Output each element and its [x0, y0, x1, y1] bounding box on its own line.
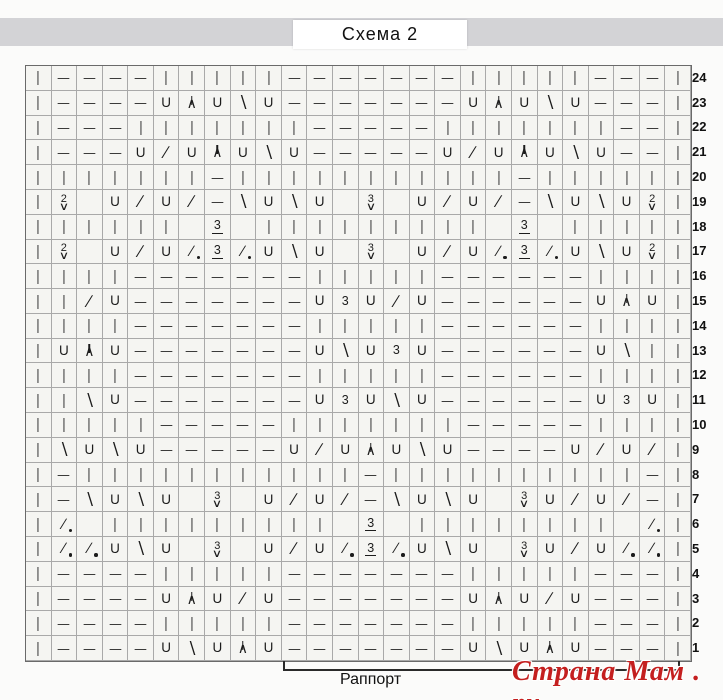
row-number-column: 242322212019181716151413121110987654321	[692, 65, 718, 660]
chart-cell-purl-stitch: —	[282, 66, 308, 91]
chart-cell-empty	[77, 190, 103, 215]
chart-cell-purl-stitch: —	[640, 140, 666, 165]
chart-cell-knit-stitch: |	[461, 215, 487, 240]
chart-cell-knit-stitch: |	[307, 165, 333, 190]
chart-cell-purl-stitch: —	[282, 264, 308, 289]
chart-cell-purl-stitch: —	[282, 388, 308, 413]
chart-cell-knit-stitch: |	[359, 165, 385, 190]
chart-cell-yarn-over: U	[154, 487, 180, 512]
chart-cell-knit-stitch: |	[256, 66, 282, 91]
chart-cell-knit-stitch: |	[179, 611, 205, 636]
chart-cell-elongated-3-wraps: 3∨	[359, 240, 385, 265]
chart-cell-knit-stitch: |	[103, 215, 129, 240]
chart-cell-knit-stitch: |	[26, 116, 52, 141]
chart-cell-purl-stitch: —	[231, 264, 257, 289]
row-number: 14	[692, 313, 718, 338]
chart-cell-purl-stitch: —	[179, 339, 205, 364]
chart-cell-knit-stitch: |	[26, 339, 52, 364]
chart-cell-yarn-over: U	[77, 438, 103, 463]
chart-cell-work-3-times: 3	[333, 388, 359, 413]
chart-cell-purl-stitch: —	[52, 91, 78, 116]
chart-cell-knit-stitch: |	[26, 487, 52, 512]
chart-cell-purl-stitch: —	[231, 363, 257, 388]
chart-cell-yarn-over: U	[563, 91, 589, 116]
chart-cell-yarn-over: U	[384, 438, 410, 463]
chart-cell-k2tog-right-decrease: ∕	[486, 190, 512, 215]
chart-cell-work-3-times: 3	[333, 289, 359, 314]
chart-cell-purl-stitch: —	[384, 562, 410, 587]
chart-cell-yarn-over: U	[538, 537, 564, 562]
chart-cell-knit-stitch: |	[103, 413, 129, 438]
chart-cell-yarn-over: U	[563, 190, 589, 215]
chart-cell-purl-stitch: —	[486, 363, 512, 388]
chart-cell-knit-stitch: |	[128, 463, 154, 488]
row-number: 8	[692, 462, 718, 487]
chart-cell-yarn-over: U	[307, 487, 333, 512]
chart-cell-left-decrease: ∖	[128, 487, 154, 512]
chart-cell-purl-stitch: —	[205, 289, 231, 314]
chart-cell-knit-stitch: |	[435, 413, 461, 438]
chart-cell-elongated-2-wraps: 2∨	[52, 190, 78, 215]
chart-cell-purl-stitch: —	[205, 314, 231, 339]
chart-cell-knit-stitch: |	[52, 289, 78, 314]
chart-cell-knit-stitch: |	[26, 91, 52, 116]
chart-cell-knit-stitch: |	[538, 66, 564, 91]
chart-cell-decrease-with-dot: ∕	[538, 240, 564, 265]
chart-cell-purl-stitch: —	[52, 611, 78, 636]
chart-cell-purl-stitch: —	[128, 562, 154, 587]
row-number: 6	[692, 511, 718, 536]
chart-cell-left-decrease: ∖	[333, 339, 359, 364]
chart-cell-knit-stitch: |	[103, 363, 129, 388]
chart-cell-yarn-over: U	[589, 140, 615, 165]
chart-cell-purl-stitch: —	[282, 611, 308, 636]
chart-cell-knit-stitch: |	[665, 165, 691, 190]
chart-cell-yarn-over: U	[307, 537, 333, 562]
chart-cell-empty	[77, 240, 103, 265]
chart-cell-purl-stitch: —	[538, 264, 564, 289]
chart-cell-knit-stitch: |	[665, 215, 691, 240]
chart-cell-purl-stitch: —	[435, 314, 461, 339]
chart-cell-empty	[333, 240, 359, 265]
chart-cell-yarn-over: U	[461, 537, 487, 562]
chart-cell-knit-stitch: |	[563, 562, 589, 587]
chart-cell-yarn-over: U	[461, 91, 487, 116]
chart-cell-k2tog-right-decrease: ∕	[307, 438, 333, 463]
chart-cell-knit-stitch: |	[307, 512, 333, 537]
chart-cell-purl-stitch: —	[486, 314, 512, 339]
chart-cell-purl-stitch: —	[307, 91, 333, 116]
chart-cell-purl-stitch: —	[359, 66, 385, 91]
page: Схема 2 |————|||||———————|||||———||————U…	[0, 0, 723, 700]
chart-cell-knit-stitch: |	[77, 215, 103, 240]
row-number: 17	[692, 239, 718, 264]
chart-cell-purl-stitch: —	[52, 140, 78, 165]
chart-cell-knit-stitch: |	[52, 215, 78, 240]
chart-cell-knit-stitch: |	[26, 314, 52, 339]
row-number: 15	[692, 288, 718, 313]
chart-cell-knit-stitch: |	[665, 116, 691, 141]
chart-cell-purl-stitch: —	[307, 636, 333, 661]
chart-cell-purl-stitch: —	[307, 587, 333, 612]
chart-cell-decrease-with-dot: ∕	[486, 240, 512, 265]
chart-cell-knit-stitch: |	[589, 314, 615, 339]
chart-cell-purl-stitch: —	[256, 264, 282, 289]
chart-cell-knit-stitch: |	[486, 611, 512, 636]
chart-cell-purl-stitch: —	[179, 264, 205, 289]
chart-cell-purl-stitch: —	[384, 91, 410, 116]
chart-cell-yarn-over: U	[307, 190, 333, 215]
chart-cell-purl-stitch: —	[614, 91, 640, 116]
chart-cell-knit-stitch: |	[512, 611, 538, 636]
chart-cell-purl-stitch: —	[52, 636, 78, 661]
chart-cell-elongated-3-wraps: 3∨	[359, 190, 385, 215]
chart-cell-purl-stitch: —	[359, 587, 385, 612]
chart-cell-central-double-decrease: ∧	[205, 140, 231, 165]
chart-cell-purl-stitch: —	[179, 413, 205, 438]
chart-cell-decrease-with-dot: ∕	[333, 537, 359, 562]
chart-cell-k2tog-right-decrease: ∕	[640, 438, 666, 463]
chart-cell-purl-stitch: —	[512, 438, 538, 463]
chart-cell-knit-stitch: |	[154, 611, 180, 636]
chart-cell-yarn-over: U	[154, 190, 180, 215]
chart-cell-yarn-over: U	[256, 91, 282, 116]
chart-cell-purl-stitch: —	[231, 339, 257, 364]
chart-cell-purl-stitch: —	[461, 339, 487, 364]
chart-cell-left-decrease: ∖	[589, 190, 615, 215]
chart-cell-yarn-over: U	[589, 339, 615, 364]
chart-cell-purl-stitch: —	[179, 388, 205, 413]
chart-cell-knit-stitch: |	[563, 165, 589, 190]
chart-cell-yarn-over: U	[435, 438, 461, 463]
chart-cell-purl-stitch: —	[333, 91, 359, 116]
chart-cell-knit-stitch: |	[665, 140, 691, 165]
chart-cell-purl-stitch: —	[512, 190, 538, 215]
chart-cell-knit-stitch: |	[26, 587, 52, 612]
row-number: 7	[692, 486, 718, 511]
chart-cell-purl-stitch: —	[205, 190, 231, 215]
chart-cell-knit-stitch: |	[563, 512, 589, 537]
chart-cell-yarn-over: U	[538, 140, 564, 165]
chart-cell-empty	[179, 487, 205, 512]
chart-cell-purl-stitch: —	[640, 562, 666, 587]
chart-cell-purl-stitch: —	[359, 611, 385, 636]
chart-cell-knit-stitch: |	[614, 165, 640, 190]
chart-cell-yarn-over: U	[410, 190, 436, 215]
chart-cell-knit-stitch: |	[205, 562, 231, 587]
row-number: 11	[692, 387, 718, 412]
chart-cell-yarn-over: U	[640, 289, 666, 314]
chart-cell-purl-stitch: —	[359, 636, 385, 661]
chart-cell-yarn-over: U	[512, 587, 538, 612]
chart-cell-yarn-over: U	[256, 240, 282, 265]
chart-cell-knit-stitch: |	[640, 165, 666, 190]
chart-cell-yarn-over: U	[256, 636, 282, 661]
chart-cell-knit-stitch: |	[461, 165, 487, 190]
chart-cell-purl-stitch: —	[486, 413, 512, 438]
chart-cell-knit-stitch: |	[26, 190, 52, 215]
chart-cell-purl-stitch: —	[435, 587, 461, 612]
chart-cell-purl-stitch: —	[154, 314, 180, 339]
row-number: 5	[692, 536, 718, 561]
chart-cell-k2tog-right-decrease: ∕	[435, 190, 461, 215]
chart-cell-purl-stitch: —	[614, 562, 640, 587]
chart-cell-left-decrease: ∖	[435, 487, 461, 512]
chart-cell-left-decrease: ∖	[614, 339, 640, 364]
chart-cell-purl-stitch: —	[589, 587, 615, 612]
chart-cell-purl-stitch: —	[538, 289, 564, 314]
row-number: 9	[692, 437, 718, 462]
chart-cell-knit-stitch: |	[589, 165, 615, 190]
chart-cell-knit-stitch: |	[256, 512, 282, 537]
chart-cell-knit-stitch: |	[410, 314, 436, 339]
chart-cell-purl-stitch: —	[154, 438, 180, 463]
chart-cell-knit-stitch: |	[665, 66, 691, 91]
chart-cell-knit-stitch: |	[231, 66, 257, 91]
chart-cell-purl-stitch: —	[282, 636, 308, 661]
chart-cell-purl-stitch: —	[486, 388, 512, 413]
chart-cell-purl-stitch: —	[614, 611, 640, 636]
chart-cell-knit-stitch: |	[359, 264, 385, 289]
chart-cell-knit-stitch: |	[26, 636, 52, 661]
chart-cell-purl-stitch: —	[384, 611, 410, 636]
chart-cell-knit-stitch: |	[614, 463, 640, 488]
chart-cell-knit-stitch: |	[231, 116, 257, 141]
chart-cell-purl-stitch: —	[435, 562, 461, 587]
chart-cell-knit-stitch: |	[26, 289, 52, 314]
chart-cell-knit-stitch: |	[282, 512, 308, 537]
chart-cell-knit-stitch: |	[410, 165, 436, 190]
chart-cell-yarn-over: U	[538, 487, 564, 512]
chart-cell-purl-stitch: —	[538, 438, 564, 463]
chart-cell-empty	[384, 190, 410, 215]
chart-cell-knit-stitch: |	[26, 240, 52, 265]
chart-cell-purl-stitch: —	[589, 562, 615, 587]
chart-cell-k2tog-right-decrease: ∕	[179, 190, 205, 215]
chart-cell-purl-stitch: —	[103, 140, 129, 165]
chart-cell-purl-stitch: —	[614, 587, 640, 612]
chart-cell-purl-stitch: —	[512, 339, 538, 364]
chart-cell-purl-stitch: —	[563, 289, 589, 314]
chart-cell-knit-stitch: |	[538, 116, 564, 141]
chart-cell-knit-stitch: |	[77, 165, 103, 190]
chart-cell-purl-stitch: —	[512, 314, 538, 339]
chart-cell-knit-stitch: |	[154, 215, 180, 240]
chart-cell-knit-stitch: |	[77, 413, 103, 438]
chart-cell-knit-stitch: |	[179, 66, 205, 91]
chart-cell-knit-stitch: |	[563, 66, 589, 91]
chart-cell-yarn-over: U	[154, 240, 180, 265]
chart-cell-k2tog-right-decrease: ∕	[231, 587, 257, 612]
chart-cell-knit-stitch: |	[256, 463, 282, 488]
chart-cell-left-decrease: ∖	[52, 438, 78, 463]
chart-cell-elongated-3-wraps: 3∨	[205, 487, 231, 512]
chart-cell-knit-stitch: |	[359, 363, 385, 388]
chart-cell-knit-stitch: |	[614, 215, 640, 240]
chart-cell-purl-stitch: —	[103, 91, 129, 116]
chart-cell-knit-stitch: |	[486, 463, 512, 488]
chart-cell-knit-stitch: |	[307, 215, 333, 240]
chart-cell-purl-stitch: —	[435, 611, 461, 636]
chart-cell-knit-stitch: |	[665, 190, 691, 215]
chart-cell-knit-stitch: |	[410, 363, 436, 388]
chart-title: Схема 2	[293, 20, 467, 49]
chart-cell-k2tog-right-decrease: ∕	[154, 140, 180, 165]
chart-cell-k2tog-right-decrease: ∕	[614, 487, 640, 512]
chart-cell-purl-stitch: —	[640, 116, 666, 141]
chart-cell-purl-stitch: —	[282, 289, 308, 314]
chart-cell-purl-stitch: —	[231, 413, 257, 438]
chart-cell-empty	[333, 190, 359, 215]
chart-cell-purl-stitch: —	[205, 363, 231, 388]
chart-cell-purl-stitch: —	[103, 116, 129, 141]
chart-cell-yarn-over: U	[103, 537, 129, 562]
row-number: 4	[692, 561, 718, 586]
chart-cell-knit-stitch: |	[333, 314, 359, 339]
chart-cell-knit-stitch: |	[179, 562, 205, 587]
chart-cell-yarn-over: U	[461, 240, 487, 265]
chart-cell-central-double-decrease: ∧	[179, 587, 205, 612]
chart-cell-purl-stitch: —	[128, 66, 154, 91]
chart-cell-knit-stitch: |	[512, 116, 538, 141]
chart-cell-elongated-2-wraps: 2∨	[640, 240, 666, 265]
chart-cell-yarn-over: U	[282, 438, 308, 463]
chart-cell-purl-stitch: —	[461, 264, 487, 289]
chart-cell-left-decrease: ∖	[231, 91, 257, 116]
chart-cell-left-decrease: ∖	[589, 240, 615, 265]
chart-cell-yarn-over: U	[154, 636, 180, 661]
chart-cell-knit-stitch: |	[26, 215, 52, 240]
chart-cell-yarn-over: U	[410, 240, 436, 265]
chart-cell-knit-stitch: |	[435, 463, 461, 488]
chart-cell-knit-stitch: |	[589, 512, 615, 537]
chart-cell-knit-stitch: |	[52, 165, 78, 190]
chart-cell-purl-stitch: —	[256, 289, 282, 314]
chart-cell-knit-stitch: |	[179, 463, 205, 488]
chart-cell-purl-stitch: —	[307, 116, 333, 141]
chart-cell-purl-stitch: —	[205, 165, 231, 190]
chart-cell-purl-stitch: —	[52, 562, 78, 587]
chart-cell-knit-stitch: |	[282, 165, 308, 190]
chart-cell-yarn-over: U	[256, 587, 282, 612]
chart-cell-yarn-over: U	[154, 587, 180, 612]
chart-cell-knit-stitch: |	[410, 264, 436, 289]
chart-cell-knit-stitch: |	[384, 413, 410, 438]
chart-cell-purl-stitch: —	[333, 562, 359, 587]
chart-cell-purl-stitch: —	[359, 487, 385, 512]
chart-cell-purl-stitch: —	[486, 339, 512, 364]
chart-cell-purl-stitch: —	[563, 264, 589, 289]
chart-cell-knit-stitch: |	[665, 413, 691, 438]
chart-cell-purl-stitch: —	[103, 587, 129, 612]
chart-cell-knit-stitch: |	[333, 165, 359, 190]
chart-cell-empty	[231, 215, 257, 240]
chart-cell-purl-stitch: —	[307, 562, 333, 587]
chart-cell-knit-stitch: |	[589, 413, 615, 438]
chart-cell-knit-stitch: |	[665, 587, 691, 612]
chart-cell-purl-stitch: —	[410, 91, 436, 116]
chart-cell-knit-stitch: |	[26, 165, 52, 190]
chart-cell-yarn-over: U	[154, 91, 180, 116]
chart-cell-k2tog-right-decrease: ∕	[333, 487, 359, 512]
chart-cell-k2tog-right-decrease: ∕	[384, 289, 410, 314]
chart-cell-purl-stitch: —	[333, 116, 359, 141]
chart-cell-yarn-over: U	[205, 91, 231, 116]
chart-cell-knit-stitch: |	[614, 363, 640, 388]
chart-cell-knit-stitch: |	[154, 562, 180, 587]
chart-cell-yarn-over: U	[410, 289, 436, 314]
chart-cell-knit-stitch: |	[461, 611, 487, 636]
chart-cell-knit-stitch: |	[307, 314, 333, 339]
chart-cell-empty	[333, 512, 359, 537]
watermark: Страна Мам . ру	[512, 656, 723, 700]
chart-cell-purl-stitch: —	[282, 562, 308, 587]
chart-cell-purl-stitch: —	[333, 636, 359, 661]
chart-cell-knit-stitch: |	[384, 165, 410, 190]
chart-cell-k2tog-right-decrease: ∕	[128, 240, 154, 265]
chart-cell-knit-stitch: |	[461, 66, 487, 91]
chart-cell-purl-stitch: —	[512, 165, 538, 190]
chart-cell-purl-stitch: —	[52, 487, 78, 512]
chart-cell-purl-stitch: —	[435, 66, 461, 91]
chart-cell-knit-stitch: |	[205, 66, 231, 91]
chart-cell-purl-stitch: —	[461, 363, 487, 388]
chart-cell-knit-stitch: |	[538, 562, 564, 587]
chart-cell-yarn-over: U	[461, 487, 487, 512]
chart-cell-yarn-over: U	[256, 190, 282, 215]
chart-cell-purl-stitch: —	[231, 438, 257, 463]
chart-cell-left-decrease: ∖	[231, 190, 257, 215]
chart-cell-knit-stitch: |	[52, 264, 78, 289]
chart-cell-yarn-over: U	[614, 190, 640, 215]
chart-cell-yarn-over: U	[359, 289, 385, 314]
chart-cell-left-decrease: ∖	[282, 240, 308, 265]
chart-cell-purl-stitch: —	[410, 611, 436, 636]
chart-cell-purl-stitch: —	[538, 339, 564, 364]
chart-cell-purl-stitch: —	[486, 289, 512, 314]
chart-cell-left-decrease: ∖	[77, 487, 103, 512]
chart-cell-knit-stitch: |	[231, 562, 257, 587]
chart-cell-yarn-over: U	[359, 388, 385, 413]
row-number: 10	[692, 412, 718, 437]
chart-cell-purl-stitch: —	[256, 388, 282, 413]
chart-cell-elongated-3-wraps: 3∨	[512, 537, 538, 562]
chart-cell-knit-stitch: |	[359, 215, 385, 240]
chart-cell-knit-stitch: |	[665, 363, 691, 388]
chart-cell-purl-stitch: —	[538, 314, 564, 339]
chart-cell-left-decrease: ∖	[128, 537, 154, 562]
chart-cell-purl-stitch: —	[256, 339, 282, 364]
chart-cell-purl-stitch: —	[154, 264, 180, 289]
chart-cell-purl-stitch: —	[179, 438, 205, 463]
chart-cell-yarn-over: U	[461, 636, 487, 661]
chart-cell-purl-stitch: —	[333, 611, 359, 636]
chart-cell-knit-stitch: |	[154, 66, 180, 91]
chart-cell-knit-stitch: |	[512, 512, 538, 537]
chart-cell-yarn-over: U	[103, 289, 129, 314]
chart-cell-knit-stitch: |	[307, 363, 333, 388]
chart-cell-purl-stitch: —	[512, 413, 538, 438]
chart-cell-purl-stitch: —	[640, 66, 666, 91]
chart-cell-purl-stitch: —	[384, 66, 410, 91]
chart-cell-knit-stitch: |	[52, 363, 78, 388]
chart-cell-knit-stitch: |	[154, 116, 180, 141]
repeat-label: Раппорт	[340, 671, 401, 689]
chart-cell-purl-stitch: —	[384, 587, 410, 612]
chart-cell-knit-stitch: |	[665, 487, 691, 512]
chart-cell-purl-stitch: —	[154, 388, 180, 413]
chart-cell-purl-stitch: —	[461, 438, 487, 463]
